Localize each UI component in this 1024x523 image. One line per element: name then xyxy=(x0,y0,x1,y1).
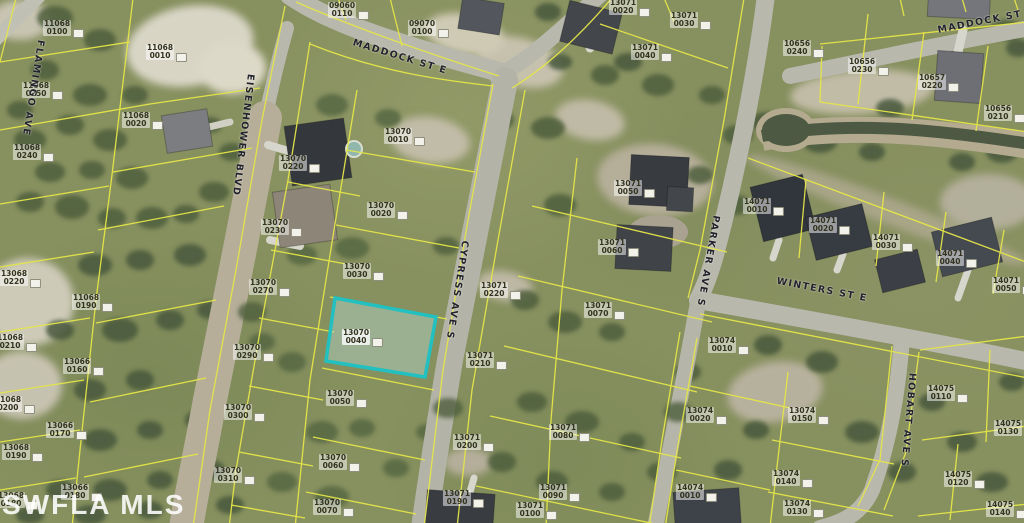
street-name-label: FLAMINGO AVE xyxy=(20,39,46,137)
street-name-label: CYPRESS AVE S xyxy=(444,240,471,341)
street-name-label: PARKER AVE S xyxy=(695,214,722,307)
street-name-label: WINTERS ST E xyxy=(776,276,869,304)
aerial-parcel-map: 1106801001106800101106802501106800201106… xyxy=(0,0,1024,523)
street-name-label: MADDOCK ST E xyxy=(351,37,448,76)
mls-watermark: SWFLA MLS xyxy=(2,489,185,521)
street-name-label: MADDOCK ST E xyxy=(937,6,1024,36)
street-name-label: EISENHOWER BLVD xyxy=(230,73,256,197)
street-labels-layer: FLAMINGO AVEMADDOCK ST EMADDOCK ST EEISE… xyxy=(0,0,1024,523)
street-name-label: HOBART AVE S xyxy=(898,372,917,467)
